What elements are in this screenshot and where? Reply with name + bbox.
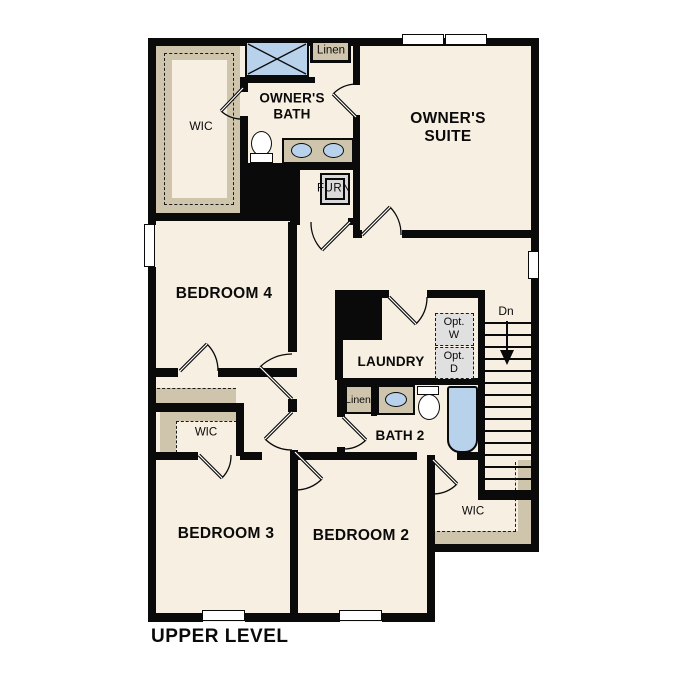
room-label-bedroom3: BEDROOM 3 bbox=[178, 525, 275, 543]
option-label-washer: Opt. W bbox=[444, 316, 465, 342]
wall-chase bbox=[337, 296, 382, 340]
wall bbox=[353, 230, 362, 238]
wall bbox=[148, 613, 203, 622]
toilet-bowl bbox=[418, 394, 440, 420]
sink bbox=[291, 143, 312, 158]
wall bbox=[348, 218, 360, 225]
wall bbox=[298, 452, 417, 460]
room-label-bath2: BATH 2 bbox=[376, 428, 425, 444]
wall bbox=[290, 450, 298, 622]
room-label-bedroom2-wic: WIC bbox=[462, 505, 484, 518]
wall bbox=[148, 213, 252, 221]
wall bbox=[337, 378, 485, 385]
page-title: UPPER LEVEL bbox=[151, 626, 288, 648]
stair-treads bbox=[485, 322, 531, 492]
window bbox=[445, 34, 487, 45]
stairs-label-dn: Dn bbox=[498, 305, 513, 319]
wall bbox=[148, 368, 178, 377]
wall bbox=[240, 452, 262, 460]
shower bbox=[245, 41, 309, 77]
wall bbox=[531, 38, 539, 253]
bedroom2-wic-shelving-bottom bbox=[435, 531, 531, 544]
sink bbox=[323, 143, 344, 158]
wall bbox=[427, 290, 485, 298]
wall bbox=[152, 403, 240, 412]
closet-label-owners-linen: Linen bbox=[317, 44, 345, 57]
wall bbox=[337, 385, 345, 417]
wall bbox=[478, 492, 539, 500]
option-label-dryer: Opt. D bbox=[444, 350, 465, 376]
closet-label-furnace: FURN bbox=[317, 182, 351, 195]
wall bbox=[427, 455, 435, 622]
room-label-bedroom4: BEDROOM 4 bbox=[176, 285, 273, 303]
footprint-notch bbox=[435, 552, 545, 627]
room-label-owners-bath: OWNER'S BATH bbox=[259, 90, 324, 121]
wall bbox=[288, 399, 297, 412]
toilet-tank bbox=[250, 153, 273, 163]
wall bbox=[402, 230, 539, 238]
wall bbox=[148, 267, 156, 622]
room-label-bedroom2: BEDROOM 2 bbox=[313, 527, 410, 545]
room-label-bedroom3-wic: WIC bbox=[195, 426, 217, 439]
closet-label-bath2-linen: Linen bbox=[345, 394, 371, 406]
window bbox=[202, 610, 245, 621]
window bbox=[402, 34, 444, 45]
sink bbox=[385, 392, 407, 407]
wall bbox=[218, 368, 297, 377]
room-label-laundry: LAUNDRY bbox=[358, 354, 425, 370]
bedroom4-closet-shelf bbox=[152, 388, 236, 404]
bathtub bbox=[447, 386, 478, 453]
window bbox=[144, 224, 155, 267]
floor-plan: OWNER'S BATH OWNER'S SUITE WIC Linen FUR… bbox=[0, 0, 687, 687]
room-label-owners-wic: WIC bbox=[189, 120, 212, 134]
wall-chase bbox=[248, 163, 300, 221]
wall bbox=[240, 77, 315, 83]
wall bbox=[531, 278, 539, 552]
wall bbox=[152, 452, 198, 460]
room-label-owners-suite: OWNER'S SUITE bbox=[410, 110, 486, 146]
wall bbox=[478, 295, 485, 500]
wall bbox=[240, 116, 248, 215]
wall bbox=[277, 163, 360, 170]
wall bbox=[430, 544, 539, 552]
wall bbox=[288, 222, 297, 352]
wall bbox=[148, 38, 156, 225]
window bbox=[339, 610, 382, 621]
wall bbox=[236, 403, 244, 456]
window bbox=[528, 251, 539, 279]
wall bbox=[353, 38, 360, 85]
